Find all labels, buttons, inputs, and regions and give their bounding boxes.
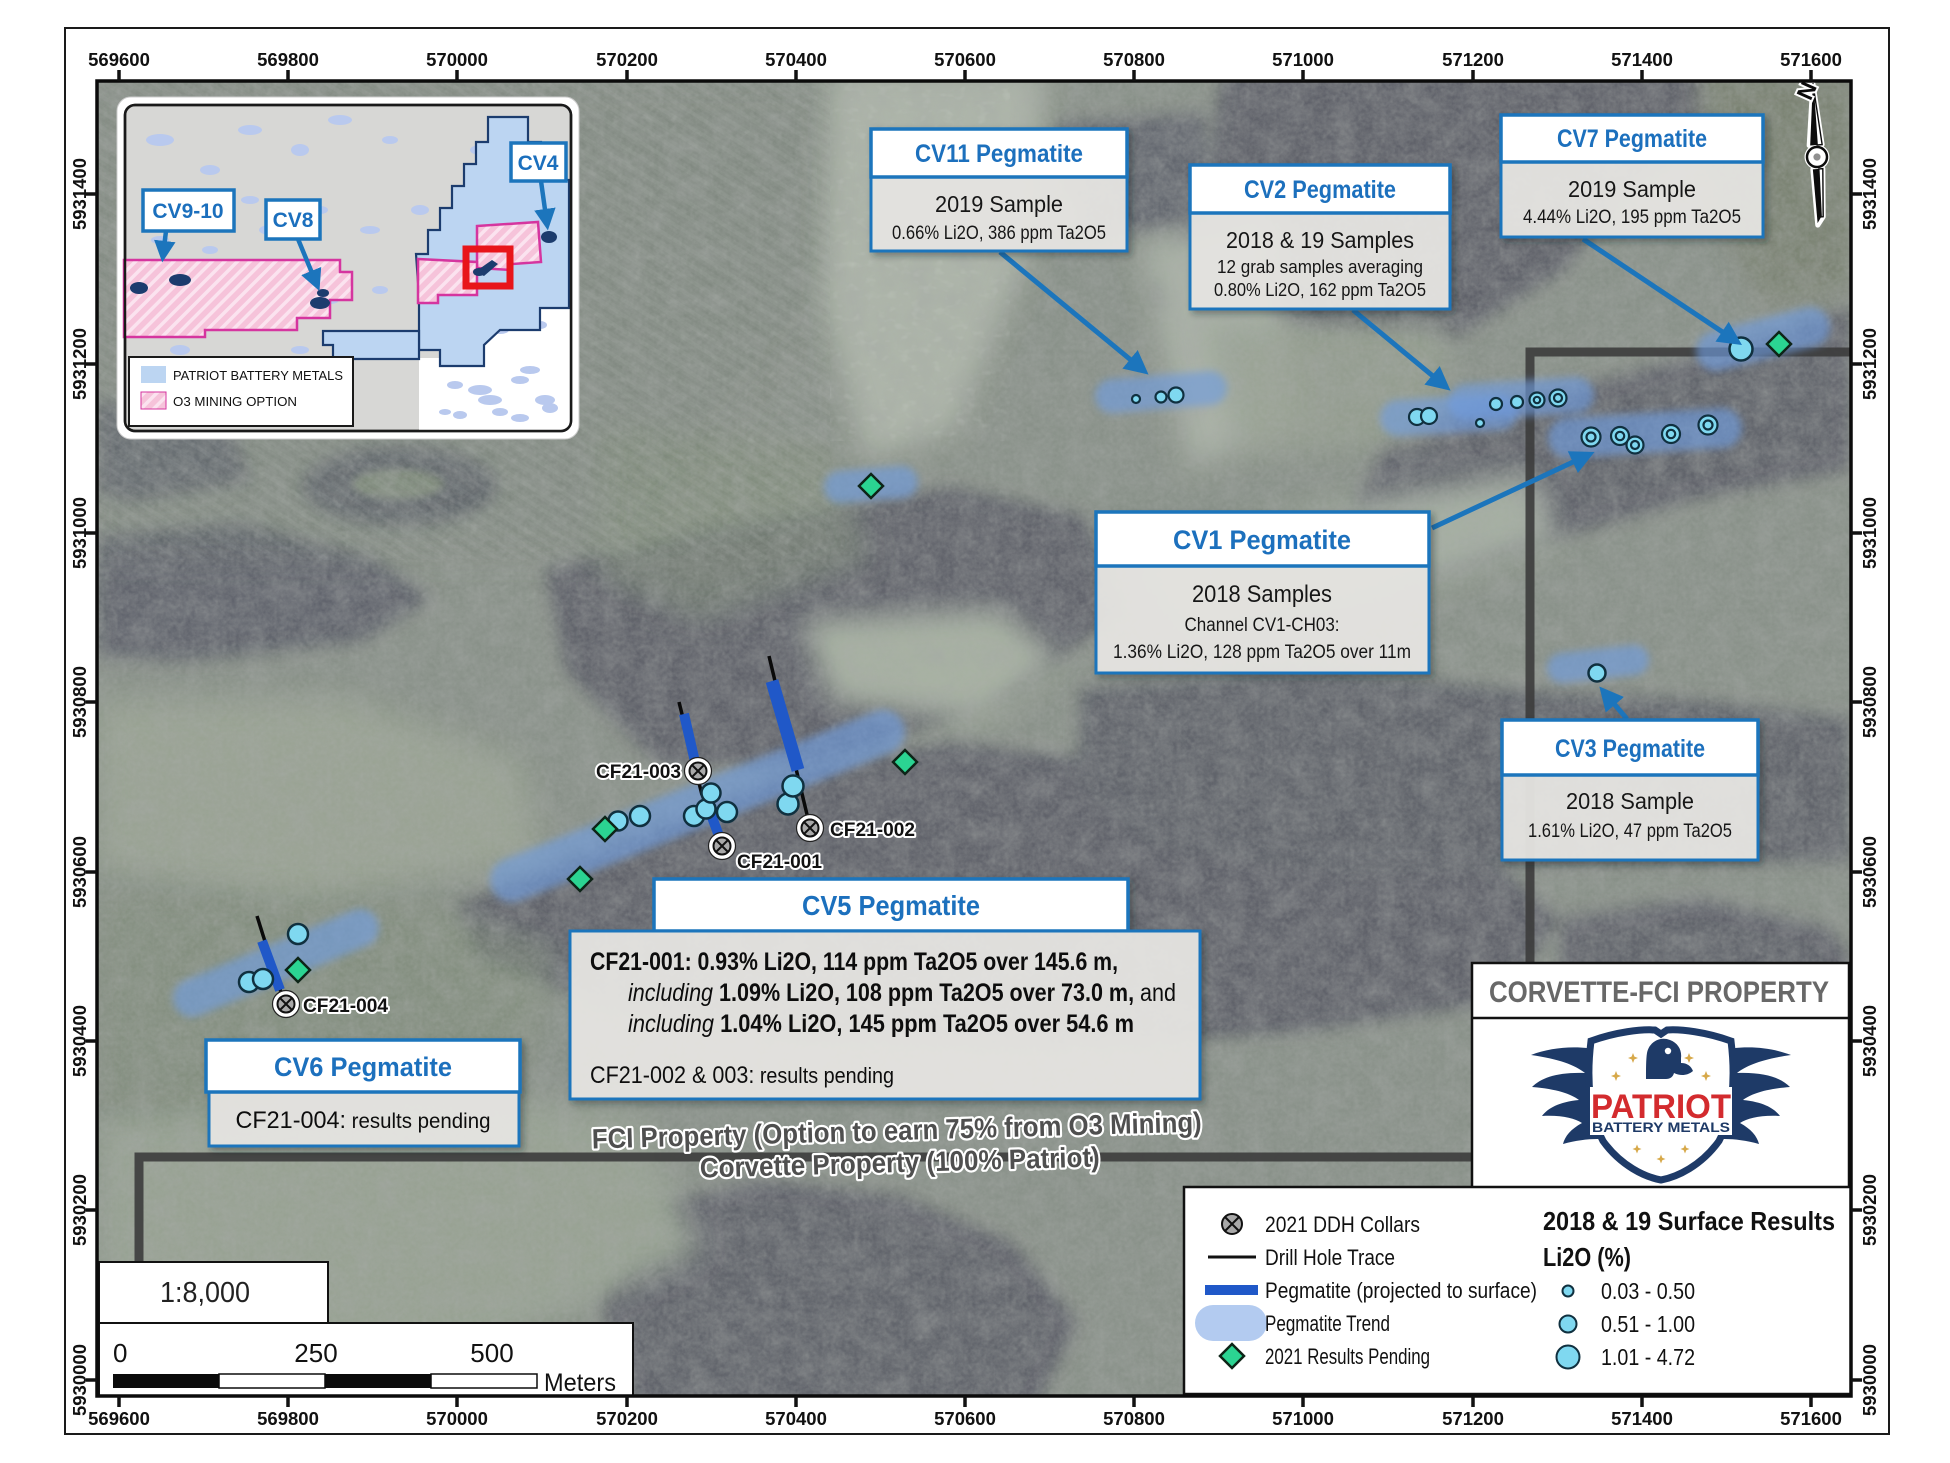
svg-text:CF21-003: CF21-003 <box>596 762 681 783</box>
svg-text:O3 MINING OPTION: O3 MINING OPTION <box>173 394 297 409</box>
svg-text:571600: 571600 <box>1780 1408 1842 1429</box>
svg-text:0.66% Li2O, 386 ppm Ta2O5: 0.66% Li2O, 386 ppm Ta2O5 <box>892 223 1106 244</box>
svg-text:570400: 570400 <box>765 49 827 70</box>
svg-text:4.44% Li2O, 195 ppm Ta2O5: 4.44% Li2O, 195 ppm Ta2O5 <box>1523 207 1741 228</box>
svg-text:CF21-001: 0.93% Li2O, 114 ppm: CF21-001: 0.93% Li2O, 114 ppm Ta2O5 over… <box>590 948 1118 976</box>
svg-text:CV5 Pegmatite: CV5 Pegmatite <box>802 890 980 921</box>
svg-text:571400: 571400 <box>1611 49 1673 70</box>
svg-text:CV8: CV8 <box>273 209 314 232</box>
svg-text:570200: 570200 <box>596 1408 658 1429</box>
svg-text:2021 DDH Collars: 2021 DDH Collars <box>1265 1212 1420 1237</box>
svg-text:570800: 570800 <box>1103 1408 1165 1429</box>
svg-text:CV3 Pegmatite: CV3 Pegmatite <box>1555 735 1705 763</box>
svg-text:2018 & 19 Surface Results: 2018 & 19 Surface Results <box>1543 1206 1835 1236</box>
svg-text:1.01 - 4.72: 1.01 - 4.72 <box>1601 1344 1695 1370</box>
svg-text:5930800: 5930800 <box>1859 666 1880 738</box>
svg-text:570800: 570800 <box>1103 49 1165 70</box>
svg-text:CF21-002 & 003: results pendin: CF21-002 & 003: results pending <box>590 1062 894 1089</box>
svg-text:570000: 570000 <box>426 1408 488 1429</box>
svg-text:CV7 Pegmatite: CV7 Pegmatite <box>1557 125 1707 153</box>
svg-text:Channel CV1-CH03:: Channel CV1-CH03: <box>1185 615 1340 636</box>
svg-text:Pegmatite (projected to surfac: Pegmatite (projected to surface) <box>1265 1278 1537 1303</box>
svg-text:5931400: 5931400 <box>1859 158 1880 230</box>
svg-text:Li2O (%): Li2O (%) <box>1543 1242 1631 1272</box>
svg-text:CV1 Pegmatite: CV1 Pegmatite <box>1173 525 1351 555</box>
svg-text:5930400: 5930400 <box>1859 1005 1880 1077</box>
svg-text:2018 & 19 Samples: 2018 & 19 Samples <box>1226 227 1414 253</box>
svg-text:0: 0 <box>113 1338 127 1368</box>
svg-text:500: 500 <box>470 1338 513 1368</box>
svg-text:571400: 571400 <box>1611 1408 1673 1429</box>
svg-text:PATRIOT BATTERY METALS: PATRIOT BATTERY METALS <box>173 368 343 383</box>
svg-text:5930400: 5930400 <box>69 1005 90 1077</box>
svg-text:571000: 571000 <box>1272 49 1334 70</box>
svg-text:569800: 569800 <box>257 1408 319 1429</box>
svg-text:Meters: Meters <box>544 1369 616 1397</box>
svg-text:1:8,000: 1:8,000 <box>160 1277 250 1309</box>
svg-text:569600: 569600 <box>88 49 150 70</box>
svg-text:CV9-10: CV9-10 <box>152 200 223 223</box>
svg-text:570600: 570600 <box>934 1408 996 1429</box>
svg-text:Pegmatite Trend: Pegmatite Trend <box>1265 1311 1390 1336</box>
svg-text:CF21-004: CF21-004 <box>303 996 388 1017</box>
svg-text:2021 Results Pending: 2021 Results Pending <box>1265 1344 1430 1369</box>
svg-text:CORVETTE-FCI PROPERTY: CORVETTE-FCI PROPERTY <box>1489 976 1829 1009</box>
svg-text:571200: 571200 <box>1442 49 1504 70</box>
svg-text:5931200: 5931200 <box>1859 328 1880 400</box>
svg-text:571600: 571600 <box>1780 49 1842 70</box>
svg-text:CV11 Pegmatite: CV11 Pegmatite <box>915 140 1083 168</box>
svg-text:Drill Hole Trace: Drill Hole Trace <box>1265 1245 1395 1270</box>
svg-text:0.51 - 1.00: 0.51 - 1.00 <box>1601 1311 1695 1337</box>
svg-text:5931000: 5931000 <box>69 497 90 569</box>
svg-text:250: 250 <box>294 1338 337 1368</box>
svg-text:CV4: CV4 <box>518 152 559 175</box>
svg-text:CF21-001: CF21-001 <box>737 852 822 873</box>
svg-text:2018 Sample: 2018 Sample <box>1566 788 1694 814</box>
svg-text:5930000: 5930000 <box>1859 1344 1880 1416</box>
svg-text:569600: 569600 <box>88 1408 150 1429</box>
svg-text:2019 Sample: 2019 Sample <box>1568 176 1696 202</box>
svg-text:5930600: 5930600 <box>69 836 90 908</box>
svg-text:5930800: 5930800 <box>69 666 90 738</box>
svg-text:571200: 571200 <box>1442 1408 1504 1429</box>
svg-text:570600: 570600 <box>934 49 996 70</box>
svg-text:5931000: 5931000 <box>1859 497 1880 569</box>
svg-text:0.80% Li2O, 162 ppm Ta2O5: 0.80% Li2O, 162 ppm Ta2O5 <box>1214 280 1426 300</box>
svg-text:570200: 570200 <box>596 49 658 70</box>
svg-text:571000: 571000 <box>1272 1408 1334 1429</box>
svg-text:570000: 570000 <box>426 49 488 70</box>
svg-text:BATTERY METALS: BATTERY METALS <box>1592 1119 1730 1135</box>
svg-text:5930600: 5930600 <box>1859 836 1880 908</box>
svg-text:including 1.04% Li2O, 145 ppm: including 1.04% Li2O, 145 ppm Ta2O5 over… <box>628 1010 1134 1038</box>
svg-text:5930200: 5930200 <box>1859 1174 1880 1246</box>
svg-text:5931200: 5931200 <box>69 328 90 400</box>
svg-text:2019 Sample: 2019 Sample <box>935 191 1063 217</box>
svg-text:including 1.09% Li2O, 108 ppm: including 1.09% Li2O, 108 ppm Ta2O5 over… <box>628 979 1176 1007</box>
svg-text:CF21-004: results pending: CF21-004: results pending <box>236 1107 491 1134</box>
svg-text:569800: 569800 <box>257 49 319 70</box>
svg-text:12 grab samples averaging: 12 grab samples averaging <box>1217 257 1423 277</box>
svg-text:570400: 570400 <box>765 1408 827 1429</box>
svg-text:1.61% Li2O, 47 ppm Ta2O5: 1.61% Li2O, 47 ppm Ta2O5 <box>1528 821 1732 842</box>
svg-text:CV2 Pegmatite: CV2 Pegmatite <box>1244 176 1396 204</box>
svg-text:5930000: 5930000 <box>69 1344 90 1416</box>
svg-text:2018 Samples: 2018 Samples <box>1192 581 1332 608</box>
svg-text:CV6 Pegmatite: CV6 Pegmatite <box>274 1052 452 1082</box>
svg-text:1.36% Li2O, 128 ppm Ta2O5 over: 1.36% Li2O, 128 ppm Ta2O5 over 11m <box>1113 642 1411 663</box>
svg-text:5930200: 5930200 <box>69 1174 90 1246</box>
svg-text:0.03 - 0.50: 0.03 - 0.50 <box>1601 1278 1695 1304</box>
svg-text:CF21-002: CF21-002 <box>830 820 915 841</box>
svg-text:5931400: 5931400 <box>69 158 90 230</box>
